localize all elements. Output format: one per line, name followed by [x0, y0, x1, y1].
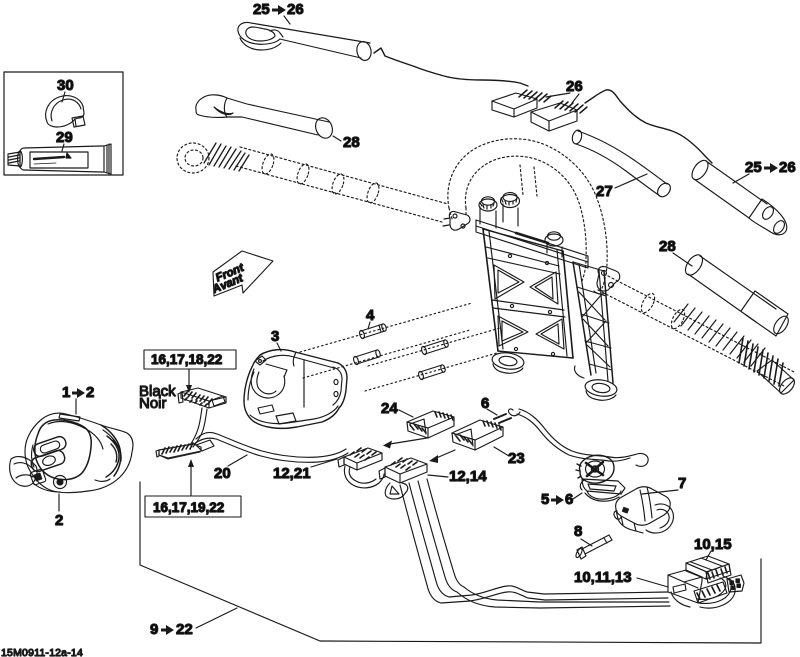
svg-text:16,17,18,22: 16,17,18,22	[151, 352, 222, 367]
svg-text:26: 26	[287, 1, 304, 18]
svg-text:28: 28	[343, 134, 360, 151]
svg-text:4: 4	[366, 307, 375, 324]
svg-text:6: 6	[565, 491, 573, 508]
svg-text:10,15: 10,15	[694, 536, 732, 553]
svg-text:25: 25	[745, 159, 762, 176]
svg-text:26: 26	[566, 78, 583, 95]
svg-text:25: 25	[253, 1, 270, 18]
svg-text:9: 9	[150, 621, 158, 638]
svg-text:3: 3	[271, 328, 279, 345]
svg-text:2: 2	[55, 512, 63, 529]
svg-text:29: 29	[56, 129, 73, 146]
svg-text:7: 7	[678, 475, 686, 492]
svg-text:Noir: Noir	[139, 395, 167, 412]
svg-text:28: 28	[659, 238, 676, 255]
svg-text:10,11,13: 10,11,13	[574, 569, 632, 586]
svg-text:30: 30	[57, 77, 74, 94]
svg-text:1: 1	[62, 384, 70, 401]
svg-text:22: 22	[176, 621, 193, 638]
svg-text:16,17,19,22: 16,17,19,22	[153, 500, 224, 515]
svg-text:26: 26	[779, 159, 796, 176]
svg-text:12,21: 12,21	[273, 465, 311, 482]
svg-text:12,14: 12,14	[449, 468, 487, 485]
svg-text:20: 20	[214, 465, 231, 482]
svg-text:23: 23	[508, 450, 525, 467]
svg-text:24: 24	[381, 400, 398, 417]
svg-text:2: 2	[86, 384, 94, 401]
svg-text:5: 5	[541, 491, 549, 508]
svg-text:27: 27	[596, 183, 613, 200]
svg-text:15M0911-12a-14: 15M0911-12a-14	[1, 647, 83, 657]
svg-text:8: 8	[574, 523, 582, 540]
